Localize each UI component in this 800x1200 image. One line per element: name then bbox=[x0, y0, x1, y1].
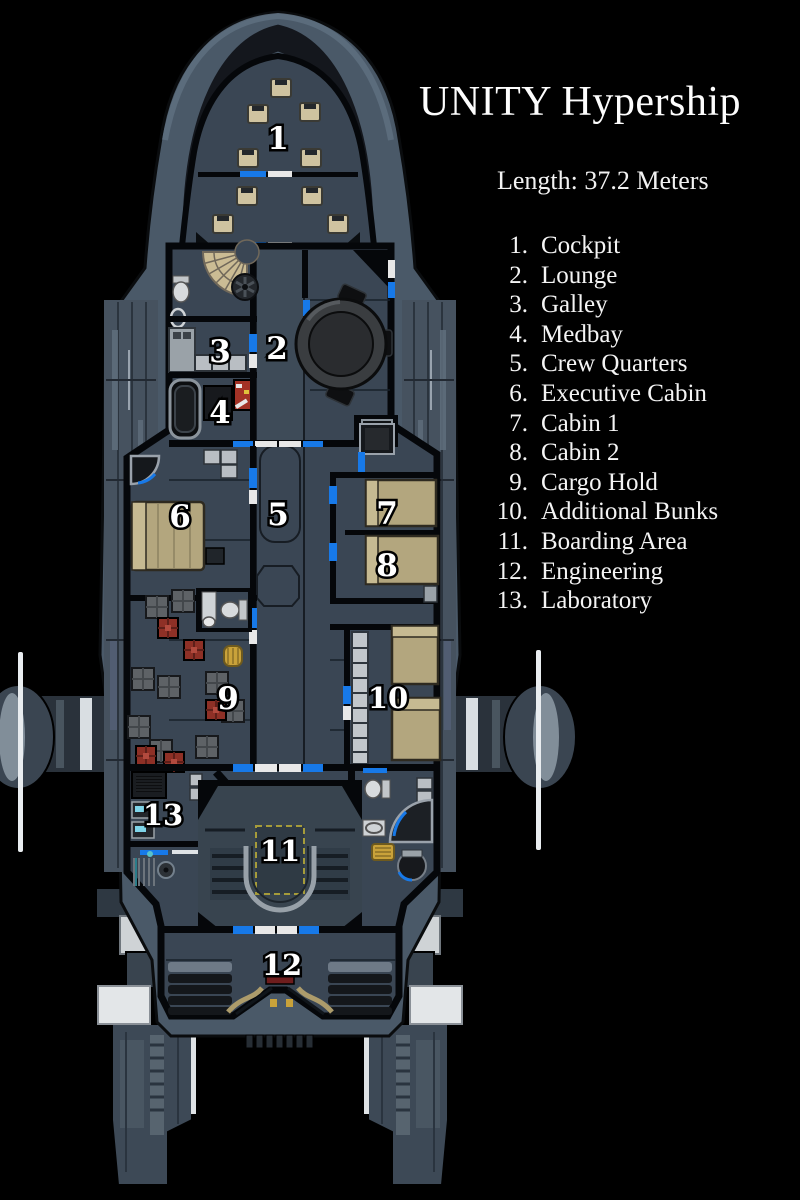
legend-item-label: Cockpit bbox=[541, 231, 620, 261]
legend-item-cabin-2: 8.Cabin 2 bbox=[462, 438, 718, 468]
legend-item-label: Crew Quarters bbox=[541, 349, 687, 379]
yellow-stool bbox=[224, 646, 242, 666]
room-legend: 1.Cockpit 2.Lounge 3.Galley 4.Medbay 5.C… bbox=[462, 231, 718, 616]
room-label-12: 12 bbox=[262, 948, 302, 982]
legend-item-label: Medbay bbox=[541, 320, 623, 350]
room-label-8: 8 bbox=[376, 548, 398, 584]
legend-item-label: Cabin 2 bbox=[541, 438, 619, 468]
ship-length-label: Length: 37.2 Meters bbox=[497, 166, 709, 196]
legend-item-laboratory: 13.Laboratory bbox=[462, 586, 718, 616]
legend-item-number: 10. bbox=[462, 497, 541, 527]
engine-teeth bbox=[246, 1035, 313, 1048]
legend-item-label: Boarding Area bbox=[541, 527, 687, 557]
room-label-5: 5 bbox=[267, 497, 289, 533]
legend-item-engineering: 12.Engineering bbox=[462, 557, 718, 587]
legend-item-boarding-area: 11.Boarding Area bbox=[462, 527, 718, 557]
ladder bbox=[352, 632, 368, 764]
room-label-3: 3 bbox=[209, 334, 231, 370]
legend-item-label: Additional Bunks bbox=[541, 497, 718, 527]
legend-item-number: 7. bbox=[462, 409, 541, 439]
legend-item-number: 12. bbox=[462, 557, 541, 587]
legend-item-label: Cabin 1 bbox=[541, 409, 619, 439]
room-label-13: 13 bbox=[143, 798, 183, 832]
legend-item-executive-cabin: 6.Executive Cabin bbox=[462, 379, 718, 409]
legend-item-label: Lounge bbox=[541, 261, 617, 291]
legend-item-number: 1. bbox=[462, 231, 541, 261]
legend-item-cockpit: 1.Cockpit bbox=[462, 231, 718, 261]
room-label-11: 11 bbox=[260, 834, 300, 868]
room-label-9: 9 bbox=[217, 681, 239, 717]
legend-item-label: Galley bbox=[541, 290, 608, 320]
door-blue bbox=[240, 171, 266, 177]
room-label-10: 10 bbox=[368, 681, 408, 715]
landing-leg-left bbox=[112, 1024, 196, 1185]
legend-item-galley: 3.Galley bbox=[462, 290, 718, 320]
legend-item-number: 8. bbox=[462, 438, 541, 468]
door-white bbox=[268, 171, 292, 177]
legend-item-number: 3. bbox=[462, 290, 541, 320]
room-label-1: 1 bbox=[267, 121, 289, 157]
legend-item-cabin-1: 7.Cabin 1 bbox=[462, 409, 718, 439]
legend-item-number: 9. bbox=[462, 468, 541, 498]
legend-item-number: 4. bbox=[462, 320, 541, 350]
legend-item-label: Laboratory bbox=[541, 586, 652, 616]
room-label-2: 2 bbox=[266, 331, 288, 367]
legend-item-number: 13. bbox=[462, 586, 541, 616]
legend-item-number: 2. bbox=[462, 261, 541, 291]
room-label-6: 6 bbox=[169, 499, 191, 535]
room-label-4: 4 bbox=[209, 395, 231, 431]
landing-leg-right bbox=[364, 1024, 448, 1185]
mid-bathroom bbox=[196, 588, 252, 632]
wing-left bbox=[0, 652, 107, 852]
legend-item-crew-quarters: 5.Crew Quarters bbox=[462, 349, 718, 379]
legend-item-label: Engineering bbox=[541, 557, 663, 587]
deck-plan-page: 1 2 3 4 5 6 7 8 9 10 11 12 13 UNITY Hype… bbox=[0, 0, 800, 1200]
legend-item-number: 11. bbox=[462, 527, 541, 557]
legend-item-medbay: 4.Medbay bbox=[462, 320, 718, 350]
legend-item-cargo-hold: 9.Cargo Hold bbox=[462, 468, 718, 498]
legend-item-number: 5. bbox=[462, 349, 541, 379]
wing-right bbox=[449, 650, 576, 850]
page-title: UNITY Hypership bbox=[408, 78, 752, 126]
legend-item-additional-bunks: 10.Additional Bunks bbox=[462, 497, 718, 527]
legend-item-number: 6. bbox=[462, 379, 541, 409]
room-label-7: 7 bbox=[376, 496, 398, 532]
legend-item-lounge: 2.Lounge bbox=[462, 261, 718, 291]
legend-item-label: Executive Cabin bbox=[541, 379, 707, 409]
legend-item-label: Cargo Hold bbox=[541, 468, 658, 498]
